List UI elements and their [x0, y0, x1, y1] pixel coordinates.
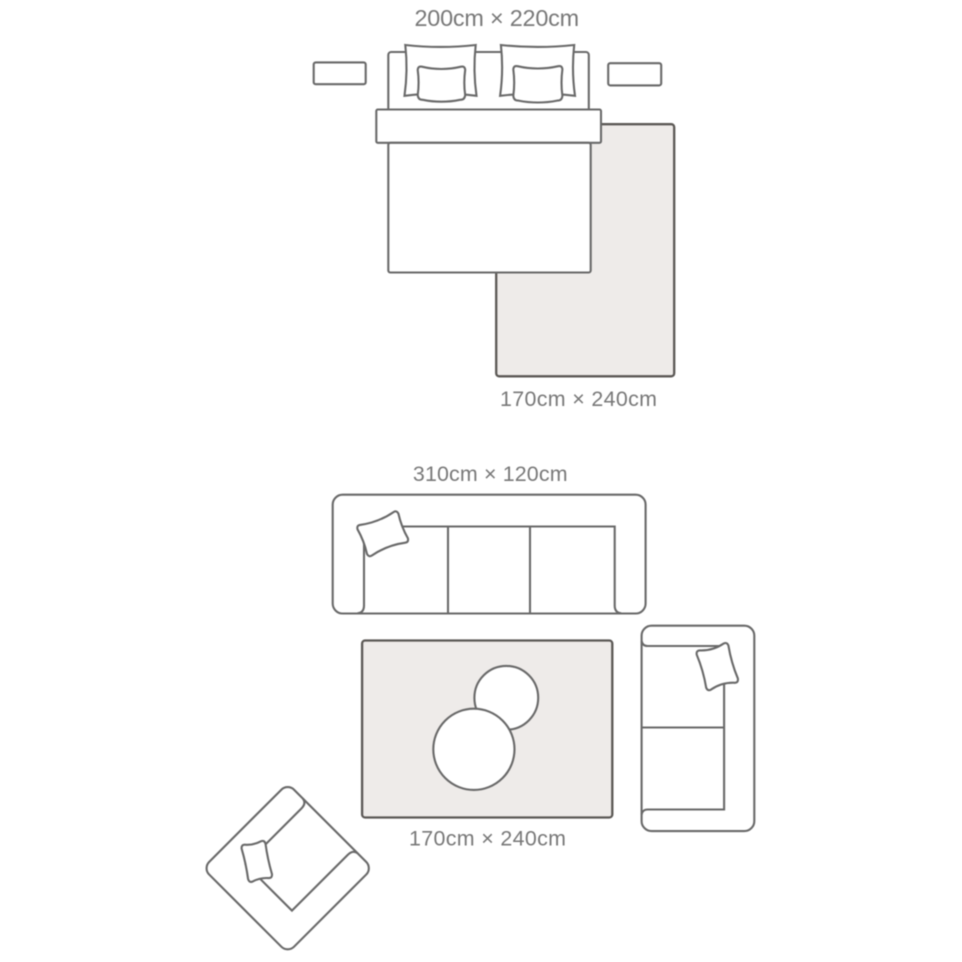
svg-text:170cm × 240cm: 170cm × 240cm — [500, 387, 657, 411]
svg-text:170cm × 240cm: 170cm × 240cm — [409, 826, 566, 850]
svg-text:200cm × 220cm: 200cm × 220cm — [414, 5, 578, 31]
svg-text:310cm × 120cm: 310cm × 120cm — [413, 462, 568, 486]
